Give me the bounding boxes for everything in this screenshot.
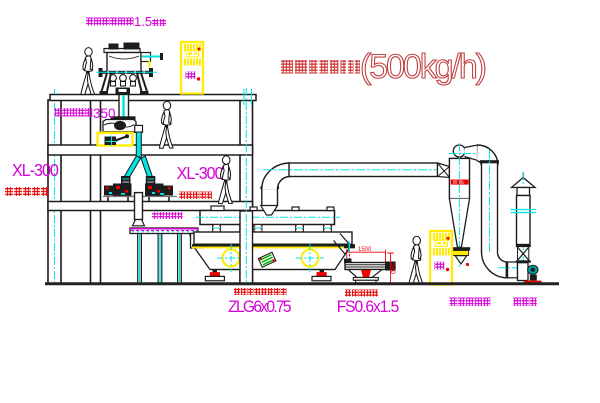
svg-text:1.5: 1.5 <box>134 14 152 29</box>
svg-text:FS0.6x1.5: FS0.6x1.5 <box>337 297 400 316</box>
svg-text:XL-300: XL-300 <box>177 163 224 183</box>
svg-text:350: 350 <box>93 106 116 121</box>
svg-text:XL-300: XL-300 <box>12 160 59 180</box>
svg-text:1500: 1500 <box>358 247 372 253</box>
svg-text:ZLG6x0.75: ZLG6x0.75 <box>228 297 291 316</box>
svg-text:(500kg/h): (500kg/h) <box>360 48 487 86</box>
svg-text:540: 540 <box>389 263 396 274</box>
